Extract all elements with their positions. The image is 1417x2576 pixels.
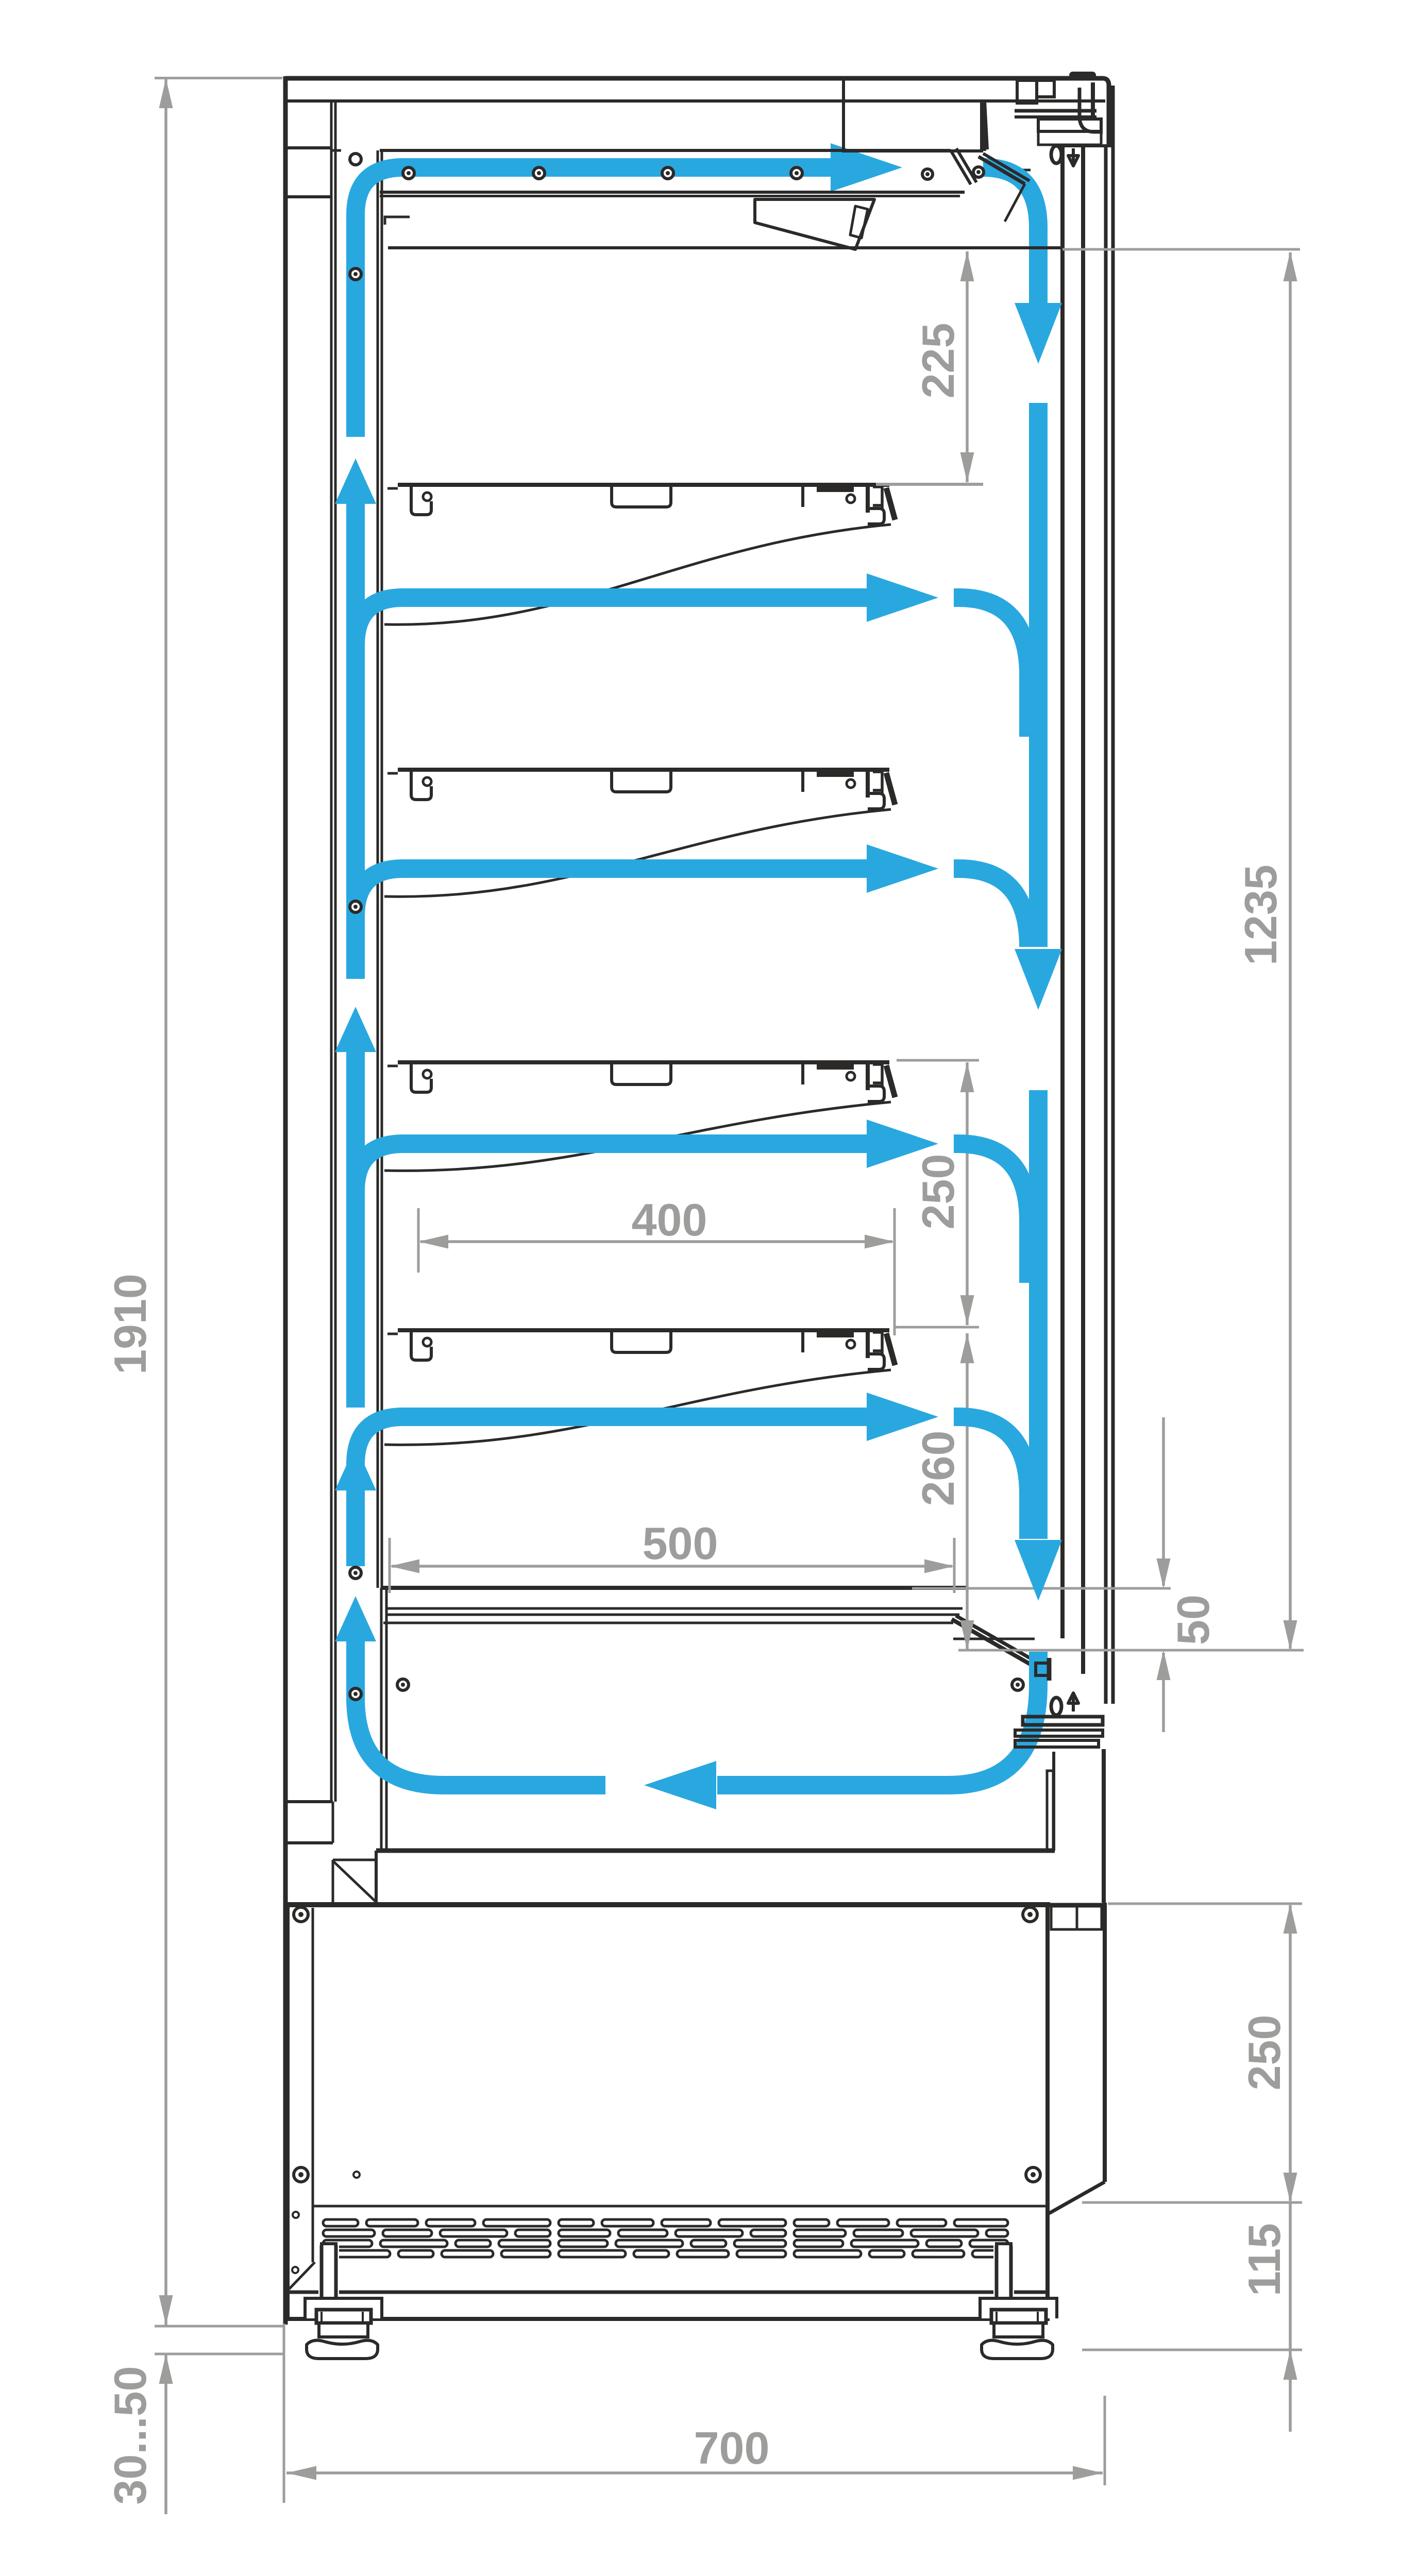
- svg-text:400: 400: [632, 1194, 707, 1245]
- svg-text:250: 250: [1239, 2015, 1290, 2091]
- svg-text:260: 260: [913, 1431, 964, 1506]
- svg-text:1235: 1235: [1235, 865, 1286, 965]
- svg-text:500: 500: [643, 1518, 718, 1569]
- svg-text:700: 700: [694, 2422, 770, 2473]
- svg-text:30...50: 30...50: [105, 2366, 156, 2504]
- svg-text:115: 115: [1239, 2223, 1290, 2296]
- svg-text:1910: 1910: [105, 1274, 156, 1375]
- svg-text:225: 225: [913, 323, 964, 399]
- svg-text:50: 50: [1168, 1595, 1219, 1645]
- svg-text:250: 250: [913, 1154, 964, 1230]
